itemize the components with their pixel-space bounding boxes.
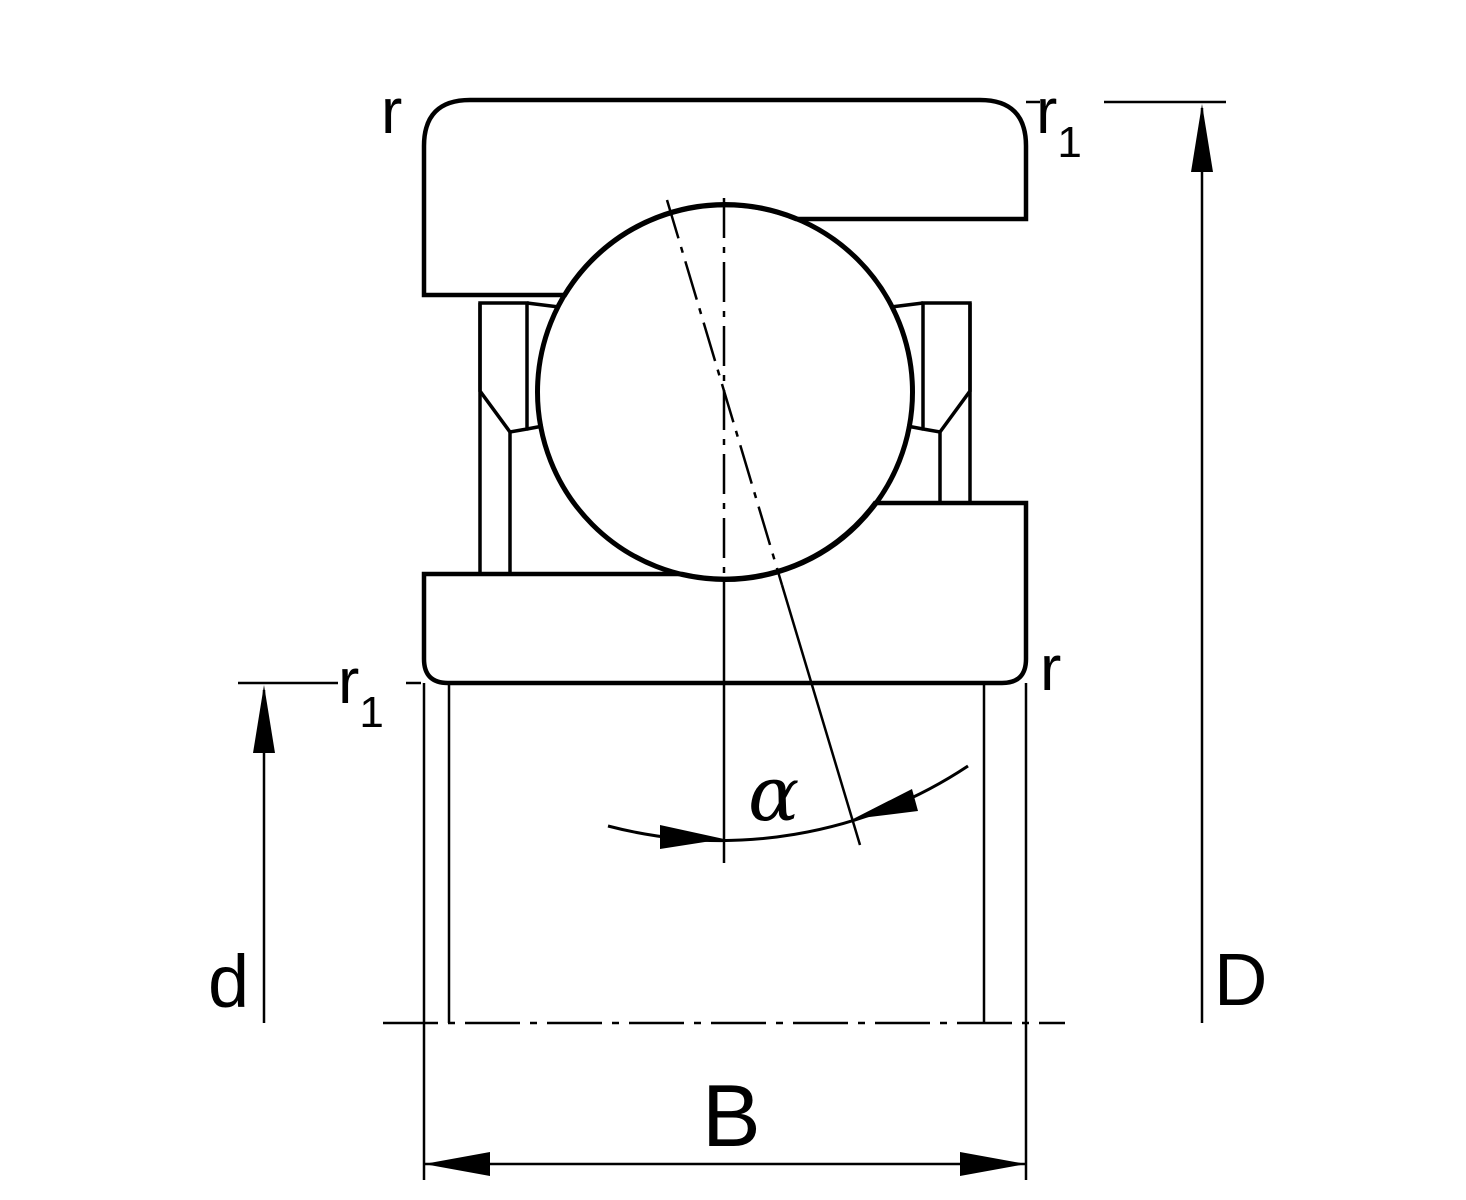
- label-r1-top-right: r1: [1036, 75, 1082, 167]
- cage-left-block: [480, 303, 527, 432]
- label-r1-top-right-sub: 1: [1057, 118, 1081, 167]
- d-dimension: [238, 683, 421, 1023]
- label-r1-bottom-left: r1: [338, 645, 384, 737]
- b-arrowhead-left: [424, 1152, 490, 1176]
- bearing-diagram-page: r r1 r1 r d D B α: [0, 0, 1466, 1200]
- label-r-bottom-right: r: [1040, 632, 1061, 704]
- cage-right-top-lip: [891, 303, 923, 307]
- label-outside-diameter-D: D: [1214, 938, 1267, 1021]
- d-arrowhead: [253, 685, 275, 753]
- label-r-top-left: r: [381, 75, 402, 147]
- b-arrowhead-right: [960, 1152, 1026, 1176]
- bearing-cross-section-diagram: r r1 r1 r d D B α: [0, 0, 1466, 1200]
- label-bore-diameter-d: d: [208, 940, 249, 1023]
- cage-left-top-lip: [527, 303, 559, 307]
- outside-diameter-dimension: [1026, 102, 1226, 1023]
- outside-diameter-arrowhead: [1191, 104, 1213, 172]
- arc-arrowhead-left: [660, 825, 724, 849]
- label-r1-bottom-left-base: r: [338, 645, 359, 717]
- cage-left: [480, 303, 559, 574]
- cage-right-block: [923, 303, 970, 432]
- label-r1-bottom-left-sub: 1: [359, 688, 383, 737]
- label-contact-angle-alpha: α: [748, 749, 799, 838]
- arc-arrowhead-right: [853, 789, 918, 819]
- label-r1-top-right-base: r: [1036, 75, 1057, 147]
- label-width-B: B: [702, 1066, 761, 1165]
